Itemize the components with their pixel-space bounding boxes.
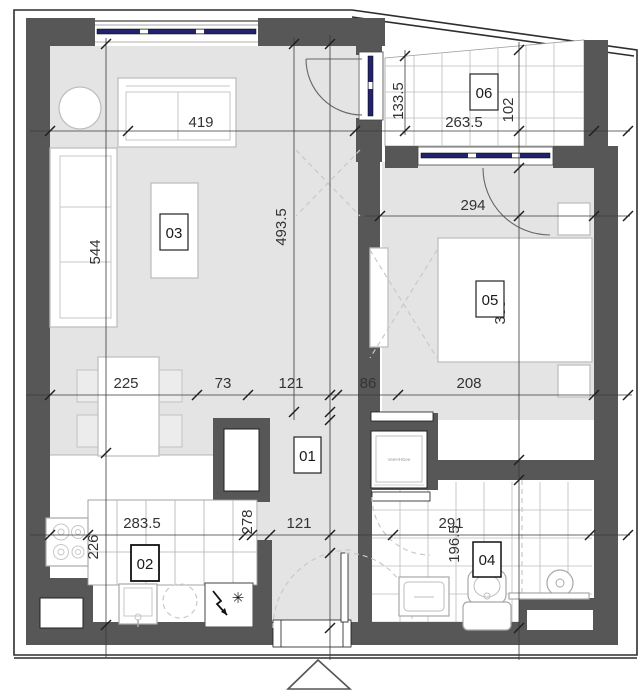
room-number: 04	[479, 552, 496, 569]
kitchen-counter	[88, 500, 257, 585]
dim-terrace-width: 263.5	[445, 114, 483, 131]
room-number: 06	[476, 85, 493, 102]
hall-door-leaf	[341, 553, 348, 622]
entrance-marker-triangle	[288, 660, 350, 689]
wall-balcony-door-bottom	[356, 118, 382, 162]
window-glazing	[421, 153, 550, 158]
dim-living-height: 544	[87, 239, 104, 264]
dim-hall-width-top: 121	[278, 375, 303, 392]
bath-lintel-leaf	[371, 412, 433, 421]
room-number: 01	[299, 448, 316, 465]
dim-gap-width: 73	[215, 375, 232, 392]
dim-center-height: 493.5	[273, 208, 290, 246]
glazing-gap	[468, 154, 476, 158]
window-glazing	[97, 29, 256, 34]
dim-terrace-height-left: 133.5	[390, 82, 407, 120]
dining-table	[98, 357, 159, 456]
dim-bathroom-height: 196.5	[446, 525, 463, 563]
wall-terrace-bedroom-right	[553, 146, 594, 168]
dim-terrace-height-right: 102	[500, 97, 517, 122]
glazing-gap	[369, 82, 373, 89]
bathroom-sink	[399, 577, 449, 616]
dim-hall-length: 278	[239, 509, 256, 534]
sofa-left	[50, 148, 117, 327]
sofa-top	[118, 78, 236, 147]
glazing-gap	[140, 30, 148, 34]
floor-plan-drawing: ✳ VeeHHGee	[0, 0, 640, 699]
glazing-gap	[196, 30, 204, 34]
room-label-06: 06	[470, 74, 498, 110]
wall-terrace-bedroom-left	[385, 146, 418, 168]
floor-plan-canvas: ✳ VeeHHGee	[0, 0, 640, 699]
dim-bed-zone: 208	[456, 375, 481, 392]
dim-dining-width: 225	[113, 375, 138, 392]
freezer-star-icon: ✳	[232, 590, 245, 607]
dim-kitchen-depth: 226	[85, 534, 102, 559]
round-table	[59, 87, 101, 129]
dim-hall-width-bottom: 121	[286, 515, 311, 532]
wall-bedroom-bottom	[430, 460, 594, 480]
bedroom-terrace-window	[418, 147, 553, 165]
wall-terrace-right	[584, 40, 608, 162]
wall-top-right	[258, 18, 385, 46]
entrance-door-panel	[273, 620, 351, 647]
bathroom-door-leaf	[372, 492, 430, 501]
washer-label: VeeHHGee	[388, 457, 411, 462]
nightstand	[558, 365, 590, 397]
room-number: 05	[482, 292, 499, 309]
washing-machine: VeeHHGee	[371, 431, 427, 488]
room-number: 02	[137, 556, 154, 573]
dim-bedroom-width: 294	[460, 197, 485, 214]
room-label-04: 04	[473, 542, 501, 577]
shaft-kitchen-inner	[40, 598, 83, 628]
room-number: 03	[166, 225, 183, 242]
dim-kitchen-width: 283.5	[123, 515, 161, 532]
room-label-05: 05	[476, 281, 504, 317]
room-label-01: 01	[294, 437, 321, 473]
bath-niche	[527, 610, 593, 630]
toilet	[463, 570, 511, 630]
room-label-02: 02	[131, 545, 159, 581]
fridge-freezer: ✳	[205, 583, 253, 627]
balcony-door	[359, 52, 383, 120]
nightstand	[558, 203, 590, 235]
living-room-window	[95, 18, 258, 46]
kitchen-sink	[119, 584, 157, 627]
dim-living-width: 419	[188, 114, 213, 131]
room-label-03: 03	[160, 214, 188, 250]
wall-right	[594, 146, 618, 645]
stove	[46, 518, 88, 566]
shaft-column-inner	[224, 429, 259, 491]
dim-bedroom-entry: 86	[360, 375, 377, 392]
entrance-door	[273, 620, 351, 647]
